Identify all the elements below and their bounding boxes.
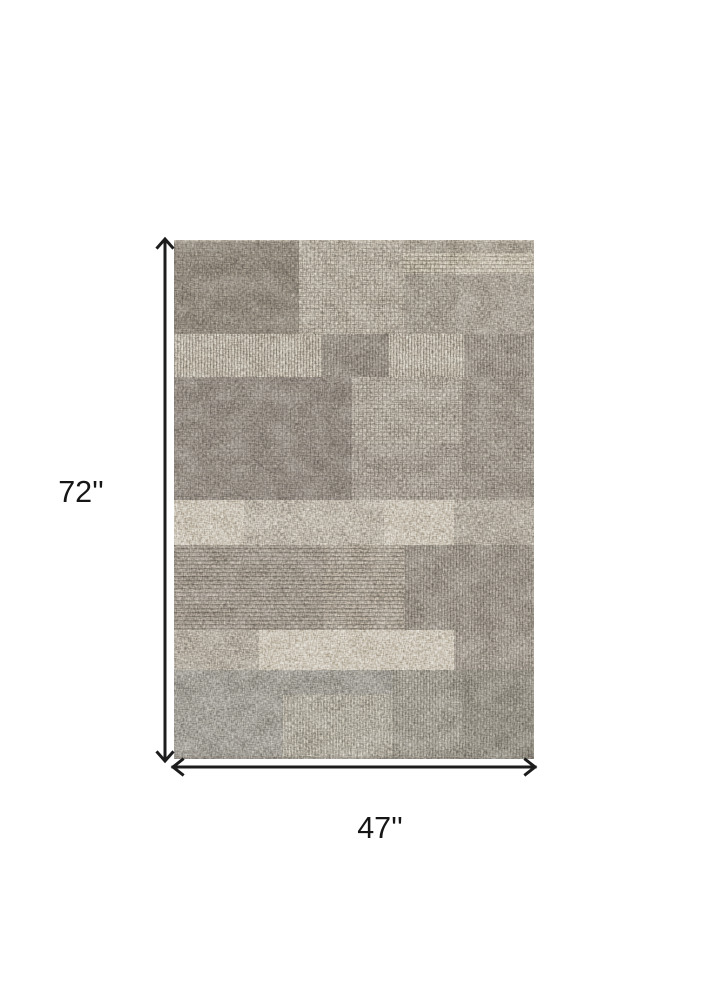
svg-text:47'': 47'' [357, 811, 403, 845]
svg-text:72'': 72'' [58, 475, 104, 509]
